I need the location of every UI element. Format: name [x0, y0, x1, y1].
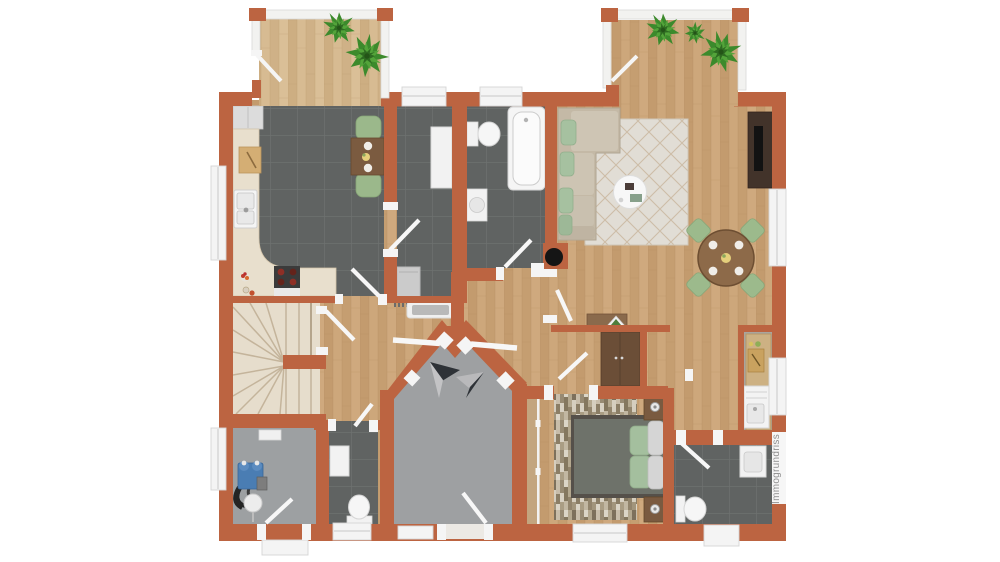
svg-text:Immogrundriss: Immogrundriss	[771, 434, 782, 504]
